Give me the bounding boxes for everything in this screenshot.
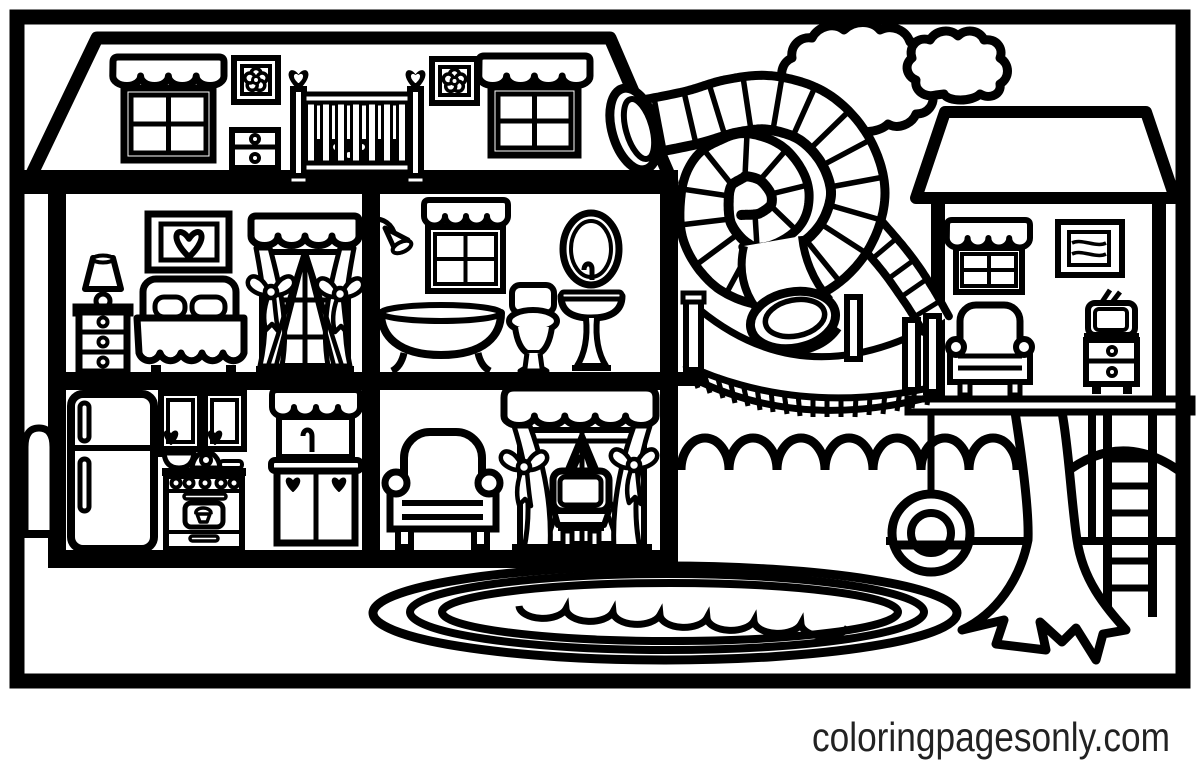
svg-text:coloringpagesonly.com: coloringpagesonly.com (812, 714, 1170, 760)
